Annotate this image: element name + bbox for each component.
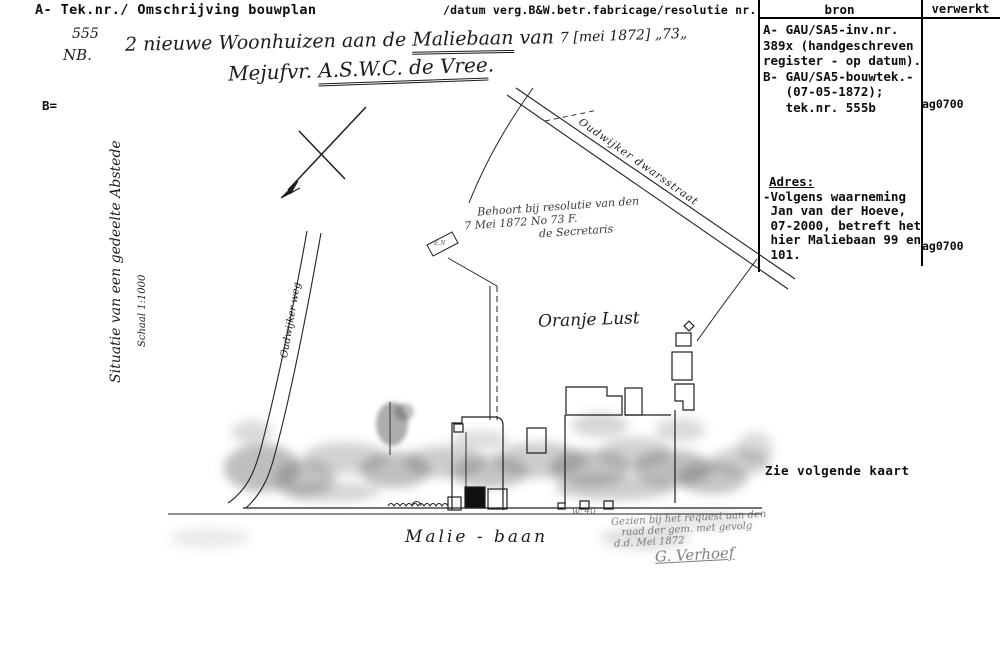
w40-mark: w. 40 (572, 507, 596, 517)
north-arrow-icon (281, 107, 366, 198)
parcel-boundaries (427, 88, 757, 420)
archive-card: A- Tek.nr./ Omschrijving bouwplan /datum… (0, 0, 1000, 648)
map-scale-label: Schaal 1:1000 (137, 275, 148, 347)
fence-line (388, 502, 448, 507)
tree-blob (376, 402, 414, 446)
site-plan-drawing (0, 0, 1000, 648)
map-side-label: Situatie van een gedeelte Abstede (108, 140, 124, 383)
road-oudwijker-dwarsstraat (507, 88, 795, 289)
street-label-maliebaan: Malie - baan (405, 527, 548, 547)
area-label-oranje-lust: Oranje Lust (538, 308, 640, 332)
bottom-right-note: Gezien bij het request aan den raad der … (611, 509, 769, 568)
building-label-en: E.N (434, 240, 446, 247)
